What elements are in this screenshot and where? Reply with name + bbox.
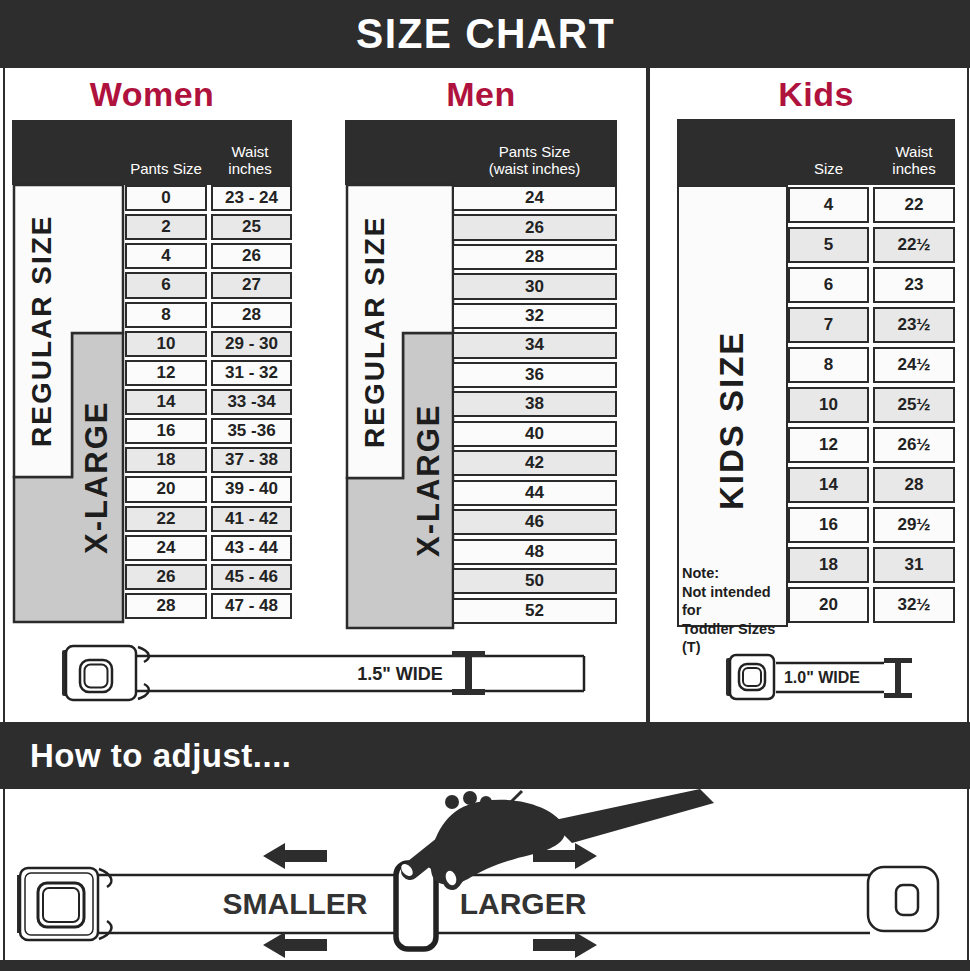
- table-cell: 2: [125, 214, 207, 240]
- table-cell: 18: [125, 447, 207, 473]
- table-row: 422: [788, 187, 955, 223]
- table-row: 023 - 24: [125, 185, 292, 211]
- men-section-title: Men: [345, 72, 617, 116]
- table-cell: 20: [788, 587, 869, 623]
- adult-belt-diagram: [62, 646, 584, 700]
- men-regular-size-label: REGULAR SIZE: [347, 188, 403, 475]
- table-row: 1226½: [788, 427, 955, 463]
- table-cell: 38: [452, 391, 617, 417]
- buckle-clip: [99, 869, 111, 939]
- women-xlarge-label: X-LARGE: [70, 336, 123, 619]
- table-cell: 32: [452, 303, 617, 329]
- women-table-body: 023 - 242254266278281029 - 301231 - 3214…: [125, 185, 292, 622]
- kids-col-waist: Waist inches: [873, 144, 955, 178]
- table-cell: 5: [788, 227, 869, 263]
- adult-belt-width-label: 1.5" WIDE: [357, 664, 443, 684]
- kids-col-size: Size: [788, 161, 869, 178]
- table-cell: 4: [125, 243, 207, 269]
- table-cell: 10: [125, 331, 207, 357]
- table-cell: 43 - 44: [211, 535, 292, 561]
- table-row: 30: [452, 273, 617, 299]
- table-cell: 27: [211, 272, 292, 298]
- table-cell: 12: [788, 427, 869, 463]
- table-cell: 36: [452, 362, 617, 388]
- table-row: 34: [452, 332, 617, 358]
- table-row: 824½: [788, 347, 955, 383]
- kids-belt-width-label: 1.0" WIDE: [784, 669, 860, 686]
- table-cell: 10: [788, 387, 869, 423]
- table-row: 36: [452, 362, 617, 388]
- men-table-body: 242628303234363840424446485052: [452, 185, 617, 627]
- table-row: 623: [788, 267, 955, 303]
- table-row: 522½: [788, 227, 955, 263]
- table-cell: 16: [788, 507, 869, 543]
- table-row: 723½: [788, 307, 955, 343]
- table-cell: 20: [125, 476, 207, 502]
- table-cell: 28: [452, 244, 617, 270]
- table-row: 1025½: [788, 387, 955, 423]
- table-cell: 28: [211, 302, 292, 328]
- table-cell: 28: [873, 467, 955, 503]
- kids-table-body: 422522½623723½824½1025½1226½14281629½183…: [788, 187, 955, 627]
- table-cell: 4: [788, 187, 869, 223]
- table-cell: 46: [452, 509, 617, 535]
- table-cell: 52: [452, 598, 617, 624]
- table-cell: 41 - 42: [211, 506, 292, 532]
- belt-width-diagrams: 1.5" WIDE 1.0" WIDE: [0, 634, 970, 722]
- kids-section-divider: [646, 68, 650, 722]
- table-row: 1831: [788, 547, 955, 583]
- table-row: 32: [452, 303, 617, 329]
- men-col-header-line1: Pants Size: [452, 144, 617, 161]
- table-row: 46: [452, 509, 617, 535]
- table-cell: 35 -36: [211, 418, 292, 444]
- table-cell: 29½: [873, 507, 955, 543]
- men-table-header: Pants Size (waist inches): [345, 120, 617, 185]
- smaller-label: SMALLER: [223, 887, 368, 920]
- table-row: 42: [452, 450, 617, 476]
- larger-label: LARGER: [460, 887, 587, 920]
- table-row: 1629½: [788, 507, 955, 543]
- table-cell: 26: [211, 243, 292, 269]
- table-cell: 24½: [873, 347, 955, 383]
- table-row: 2039 - 40: [125, 476, 292, 502]
- width-marker-icon: [884, 658, 912, 698]
- kids-note-line2: Not intended for: [682, 583, 788, 620]
- table-cell: 25½: [873, 387, 955, 423]
- table-cell: 23 - 24: [211, 185, 292, 211]
- table-row: 225: [125, 214, 292, 240]
- hand-illustration: [399, 789, 714, 887]
- table-cell: 30: [452, 273, 617, 299]
- table-row: 1635 -36: [125, 418, 292, 444]
- table-cell: 45 - 46: [211, 564, 292, 590]
- arrow-left-icon: [263, 932, 327, 958]
- table-cell: 12: [125, 360, 207, 386]
- table-row: 40: [452, 421, 617, 447]
- men-col-header-line2: (waist inches): [452, 161, 617, 178]
- table-cell: 24: [452, 185, 617, 211]
- table-row: 44: [452, 480, 617, 506]
- kids-size-label: KIDS SIZE: [700, 310, 764, 530]
- table-cell: 26: [125, 564, 207, 590]
- table-cell: 31: [873, 547, 955, 583]
- women-regular-size-label: REGULAR SIZE: [14, 188, 70, 474]
- table-cell: 0: [125, 185, 207, 211]
- size-chart-page: SIZE CHART Women Men Kids Pants Size Wai…: [0, 0, 970, 971]
- table-row: 2032½: [788, 587, 955, 623]
- table-row: 1029 - 30: [125, 331, 292, 357]
- how-to-adjust-bar: How to adjust....: [0, 722, 970, 789]
- table-row: 52: [452, 598, 617, 624]
- table-cell: 22: [125, 506, 207, 532]
- table-cell: 7: [788, 307, 869, 343]
- table-cell: 47 - 48: [211, 593, 292, 619]
- page-title: SIZE CHART: [356, 10, 615, 58]
- table-cell: 32½: [873, 587, 955, 623]
- table-row: 28: [452, 244, 617, 270]
- kids-note-line1: Note:: [682, 564, 788, 583]
- table-cell: 8: [125, 302, 207, 328]
- table-cell: 26½: [873, 427, 955, 463]
- table-cell: 6: [125, 272, 207, 298]
- table-cell: 23½: [873, 307, 955, 343]
- table-row: 1433 -34: [125, 389, 292, 415]
- table-cell: 33 -34: [211, 389, 292, 415]
- table-cell: 22: [873, 187, 955, 223]
- table-cell: 24: [125, 535, 207, 561]
- table-cell: 50: [452, 568, 617, 594]
- adjust-illustration: SMALLER LARGER: [0, 789, 970, 960]
- buckle-icon: [20, 868, 98, 940]
- width-marker-icon: [452, 651, 485, 695]
- table-cell: 26: [452, 214, 617, 240]
- kids-table-header: Size Waist inches: [677, 119, 955, 185]
- women-table-header: Pants Size Waist inches: [12, 120, 292, 185]
- table-cell: 8: [788, 347, 869, 383]
- table-cell: 14: [125, 389, 207, 415]
- kids-section-title: Kids: [677, 72, 955, 116]
- buckle-icon: [730, 655, 774, 699]
- women-col-waist: Waist inches: [208, 144, 292, 178]
- table-cell: 31 - 32: [211, 360, 292, 386]
- table-cell: 40: [452, 421, 617, 447]
- women-col-pants: Pants Size: [125, 161, 207, 178]
- table-cell: 23: [873, 267, 955, 303]
- table-cell: 37 - 38: [211, 447, 292, 473]
- table-cell: 14: [788, 467, 869, 503]
- table-cell: 44: [452, 480, 617, 506]
- table-row: 48: [452, 539, 617, 565]
- table-row: 38: [452, 391, 617, 417]
- table-cell: 18: [788, 547, 869, 583]
- bottom-border-strip: [0, 960, 970, 971]
- table-row: 2443 - 44: [125, 535, 292, 561]
- table-row: 50: [452, 568, 617, 594]
- men-col-header: Pants Size (waist inches): [452, 144, 617, 178]
- arrow-left-icon: [263, 843, 327, 869]
- table-cell: 16: [125, 418, 207, 444]
- table-cell: 39 - 40: [211, 476, 292, 502]
- table-cell: 25: [211, 214, 292, 240]
- table-row: 2241 - 42: [125, 506, 292, 532]
- women-section-title: Women: [12, 72, 292, 116]
- table-row: 26: [452, 214, 617, 240]
- table-row: 627: [125, 272, 292, 298]
- table-row: 1428: [788, 467, 955, 503]
- table-row: 828: [125, 302, 292, 328]
- table-cell: 22½: [873, 227, 955, 263]
- men-xlarge-label: X-LARGE: [403, 336, 455, 625]
- table-row: 24: [452, 185, 617, 211]
- table-row: 2847 - 48: [125, 593, 292, 619]
- table-row: 426: [125, 243, 292, 269]
- table-cell: 42: [452, 450, 617, 476]
- belt-tip-slot: [896, 885, 918, 915]
- table-cell: 28: [125, 593, 207, 619]
- table-row: 1837 - 38: [125, 447, 292, 473]
- table-cell: 29 - 30: [211, 331, 292, 357]
- table-cell: 6: [788, 267, 869, 303]
- table-cell: 34: [452, 332, 617, 358]
- how-to-adjust-title: How to adjust....: [30, 737, 292, 775]
- arrow-right-icon: [533, 932, 597, 958]
- table-row: 1231 - 32: [125, 360, 292, 386]
- title-bar: SIZE CHART: [0, 0, 970, 68]
- table-row: 2645 - 46: [125, 564, 292, 590]
- table-cell: 48: [452, 539, 617, 565]
